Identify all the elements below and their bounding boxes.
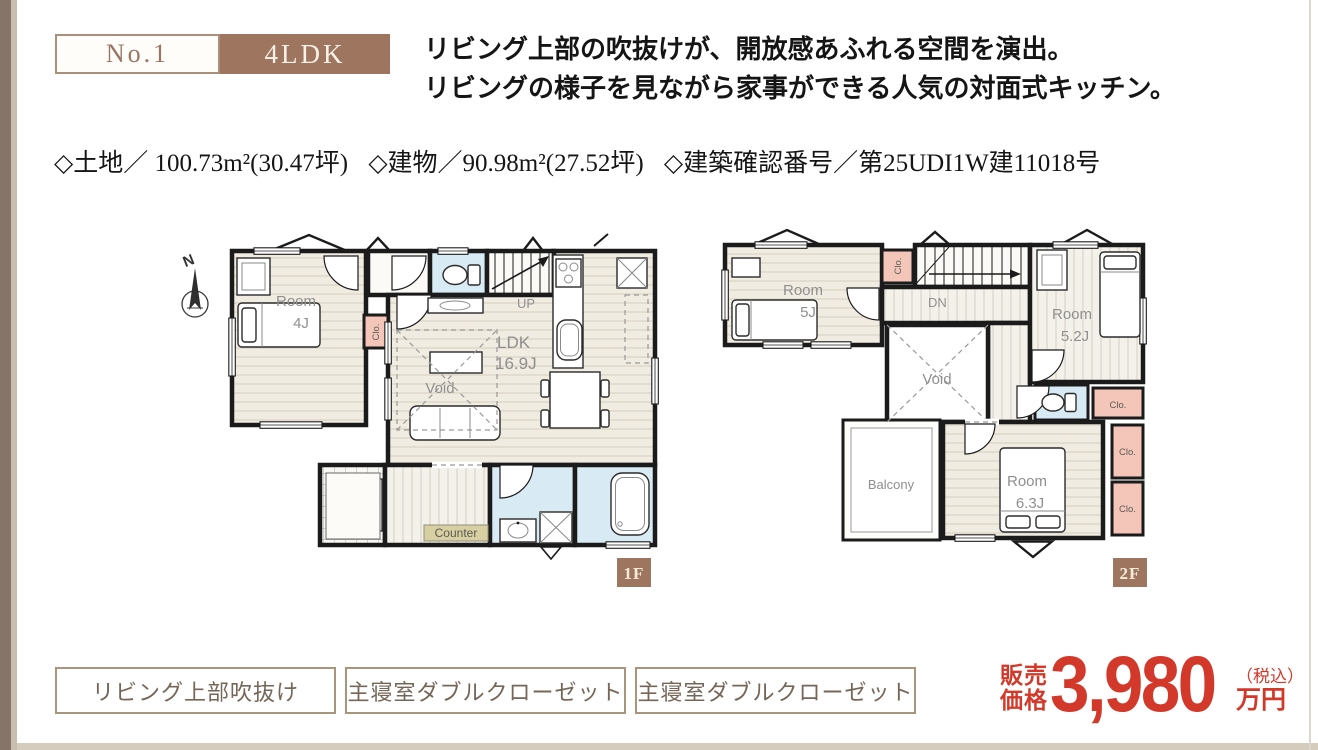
plan-type-badge: 4LDK [220,34,390,74]
closet-2f-b2-label: Clo. [1119,504,1136,515]
feature-badge-3: 主寝室ダブルクローゼット [635,667,916,714]
room-5j-size: 5J [800,304,816,321]
room-5-2j-size: 5.2J [1061,328,1089,345]
floorplan-2f: Room 5J Clo. DN Room 5.2J Void Balcony R… [715,228,1165,593]
plan-number-label: No.1 [106,39,169,69]
balcony-label: Balcony [868,477,915,492]
frame-left-dark [0,0,11,750]
compass-icon: N [181,251,208,317]
price-tax-note: （税込） [1236,667,1304,687]
price-unit: 万円 [1236,687,1304,716]
frame-right-line [1309,0,1311,750]
price-suffix: （税込） 万円 [1236,667,1304,715]
price-label: 販売 価格 [1000,663,1048,713]
room-4j-name: Room [276,293,316,310]
feature-badge-1: リビング上部吹抜け [55,667,336,714]
price-label-top: 販売 [1000,663,1048,688]
door-mark-icon [541,547,561,559]
plan-type-label: 4LDK [265,39,346,70]
counter-label: Counter [435,526,478,540]
plan-number-badge: No.1 [55,34,220,74]
headline-line2: リビングの様子を見ながら家事ができる人気の対面式キッチン。 [424,69,1176,108]
property-info: ◇土地／ 100.73m²(30.47坪) ◇建物／90.98m²(27.52坪… [54,143,1114,179]
room-4j-size: 4J [293,315,309,332]
price-label-bottom: 価格 [1000,688,1048,713]
stairs-down-label: DN [928,295,947,310]
feature-badge-2-label: 主寝室ダブルクローゼット [347,675,623,707]
room-6-3j-name: Room [1007,473,1047,490]
ldk-size: 16.9J [495,354,537,373]
floor-tag-1f-label: 1F [624,564,645,583]
void-label-2f: Void [922,371,951,388]
frame-left-light [11,0,17,750]
void-label-1f: Void [425,380,454,397]
closet-2f-b1-label: Clo. [1119,447,1136,458]
hall-2f [882,287,1030,323]
roof-vent-icon [1014,542,1052,558]
headline-line1: リビング上部の吹抜けが、開放感あふれる空間を演出。 [424,30,1176,69]
confirmation-number: ◇建築確認番号／第25UDI1W建11018号 [664,150,1100,177]
price-amount: 3,980 [1050,645,1214,723]
closet-1f-label: Clo. [371,324,382,341]
headline: リビング上部の吹抜けが、開放感あふれる空間を演出。 リビングの様子を見ながら家事… [424,30,1176,108]
compass-north-label: N [181,251,197,271]
room-6-3j-size: 6.3J [1016,495,1044,512]
feature-badge-2: 主寝室ダブルクローゼット [345,667,626,714]
frame-bottom-strip [17,743,1318,750]
stairs-up-label: UP [517,296,535,311]
room-5j-name: Room [783,282,823,299]
closet-2f-top-label: Clo. [893,258,904,275]
ldk-name: LDK [497,333,531,352]
floorplan-1f: N [170,232,662,590]
closet-2f-right-label: Clo. [1110,400,1127,411]
building-area: ◇建物／90.98m²(27.52坪) [368,150,643,177]
room-5-2j-name: Room [1052,306,1092,323]
feature-badge-1-label: リビング上部吹抜け [92,675,299,707]
land-area: ◇土地／ 100.73m²(30.47坪) [54,150,348,177]
feature-badge-3-label: 主寝室ダブルクローゼット [637,675,913,707]
floor-tag-2f-label: 2F [1120,564,1141,583]
